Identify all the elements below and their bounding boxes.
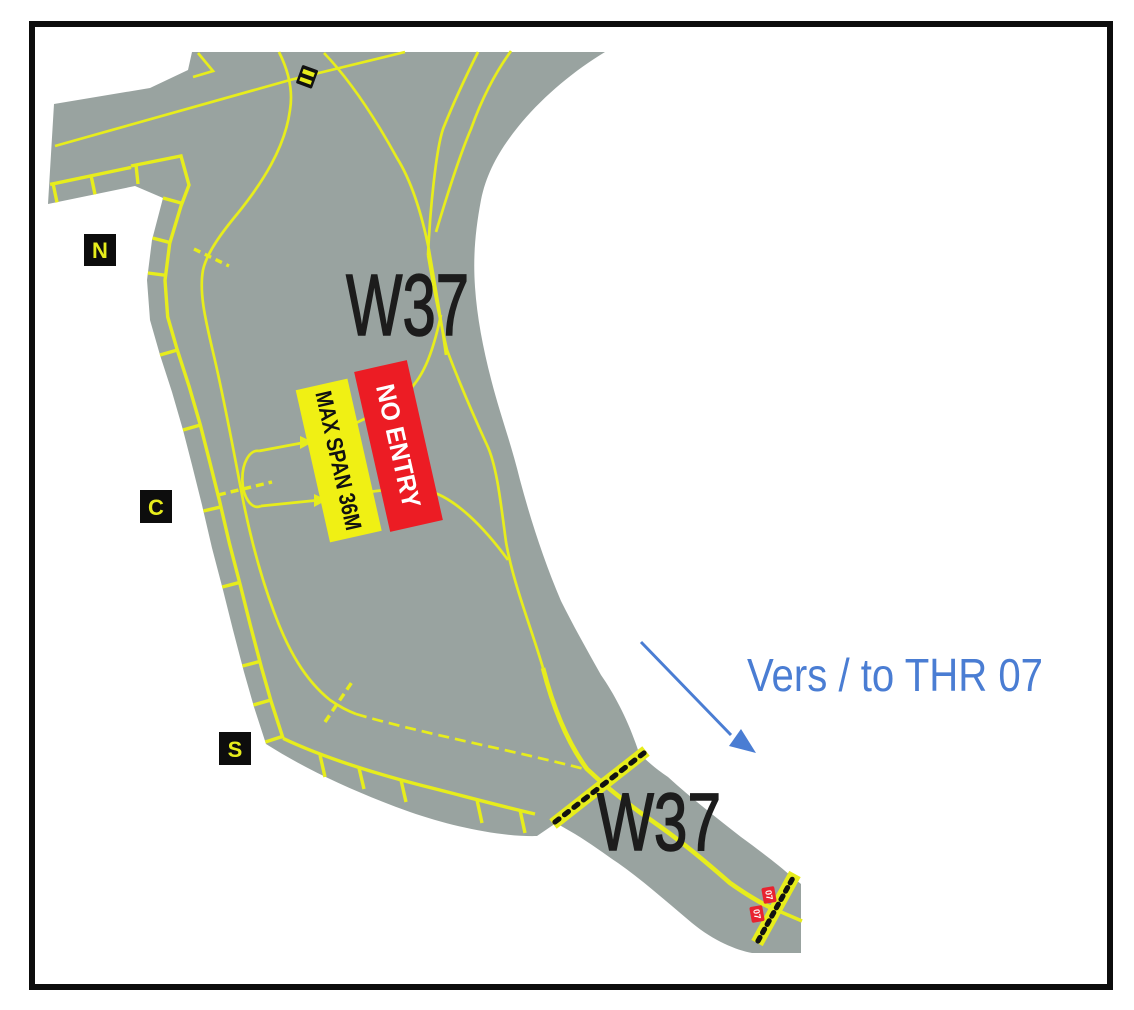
svg-text:C: C [148,495,164,520]
svg-text:07: 07 [763,889,775,901]
svg-text:W37: W37 [346,257,469,354]
svg-text:N: N [92,238,108,263]
svg-text:S: S [228,737,243,762]
svg-text:W37: W37 [597,777,721,868]
svg-text:Vers / to THR 07: Vers / to THR 07 [747,649,1043,701]
svg-text:07: 07 [751,908,763,920]
